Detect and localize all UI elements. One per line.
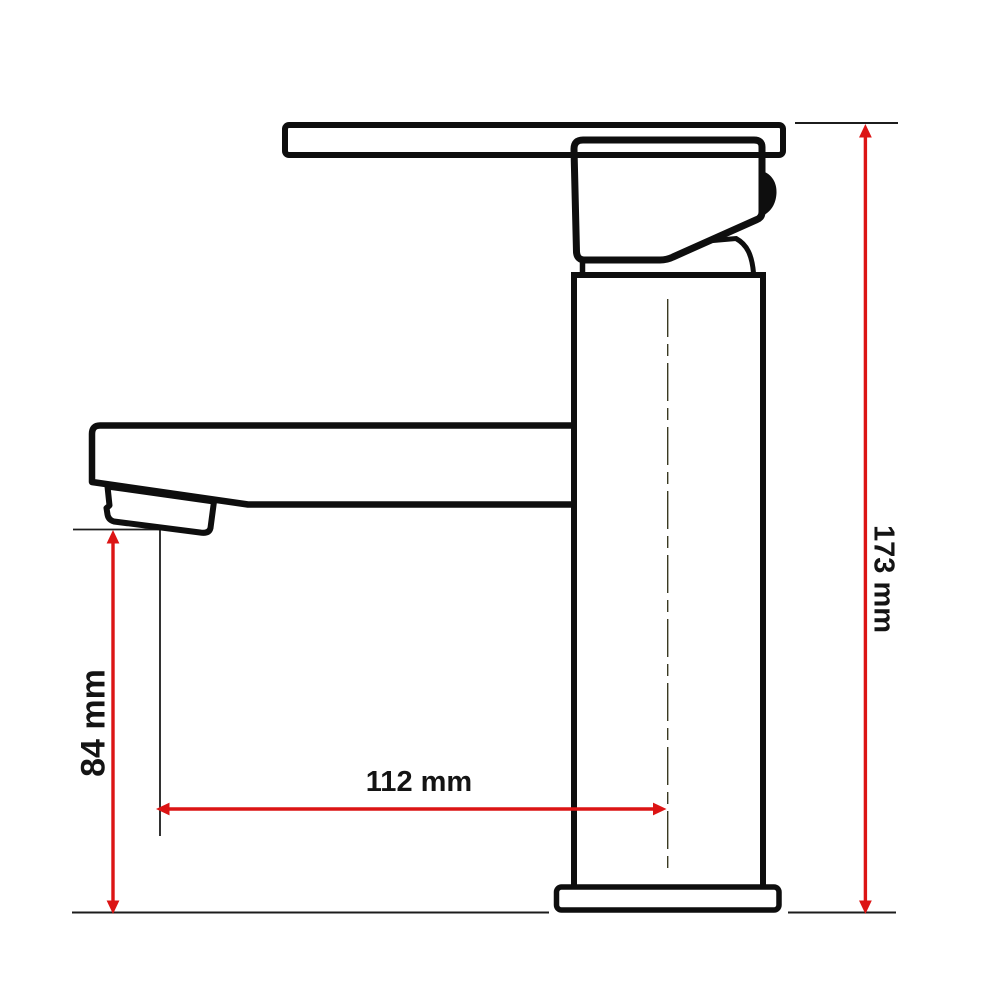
svg-text:173 mm: 173 mm <box>868 525 900 633</box>
svg-text:84 mm: 84 mm <box>75 669 113 777</box>
svg-text:112 mm: 112 mm <box>366 766 472 798</box>
